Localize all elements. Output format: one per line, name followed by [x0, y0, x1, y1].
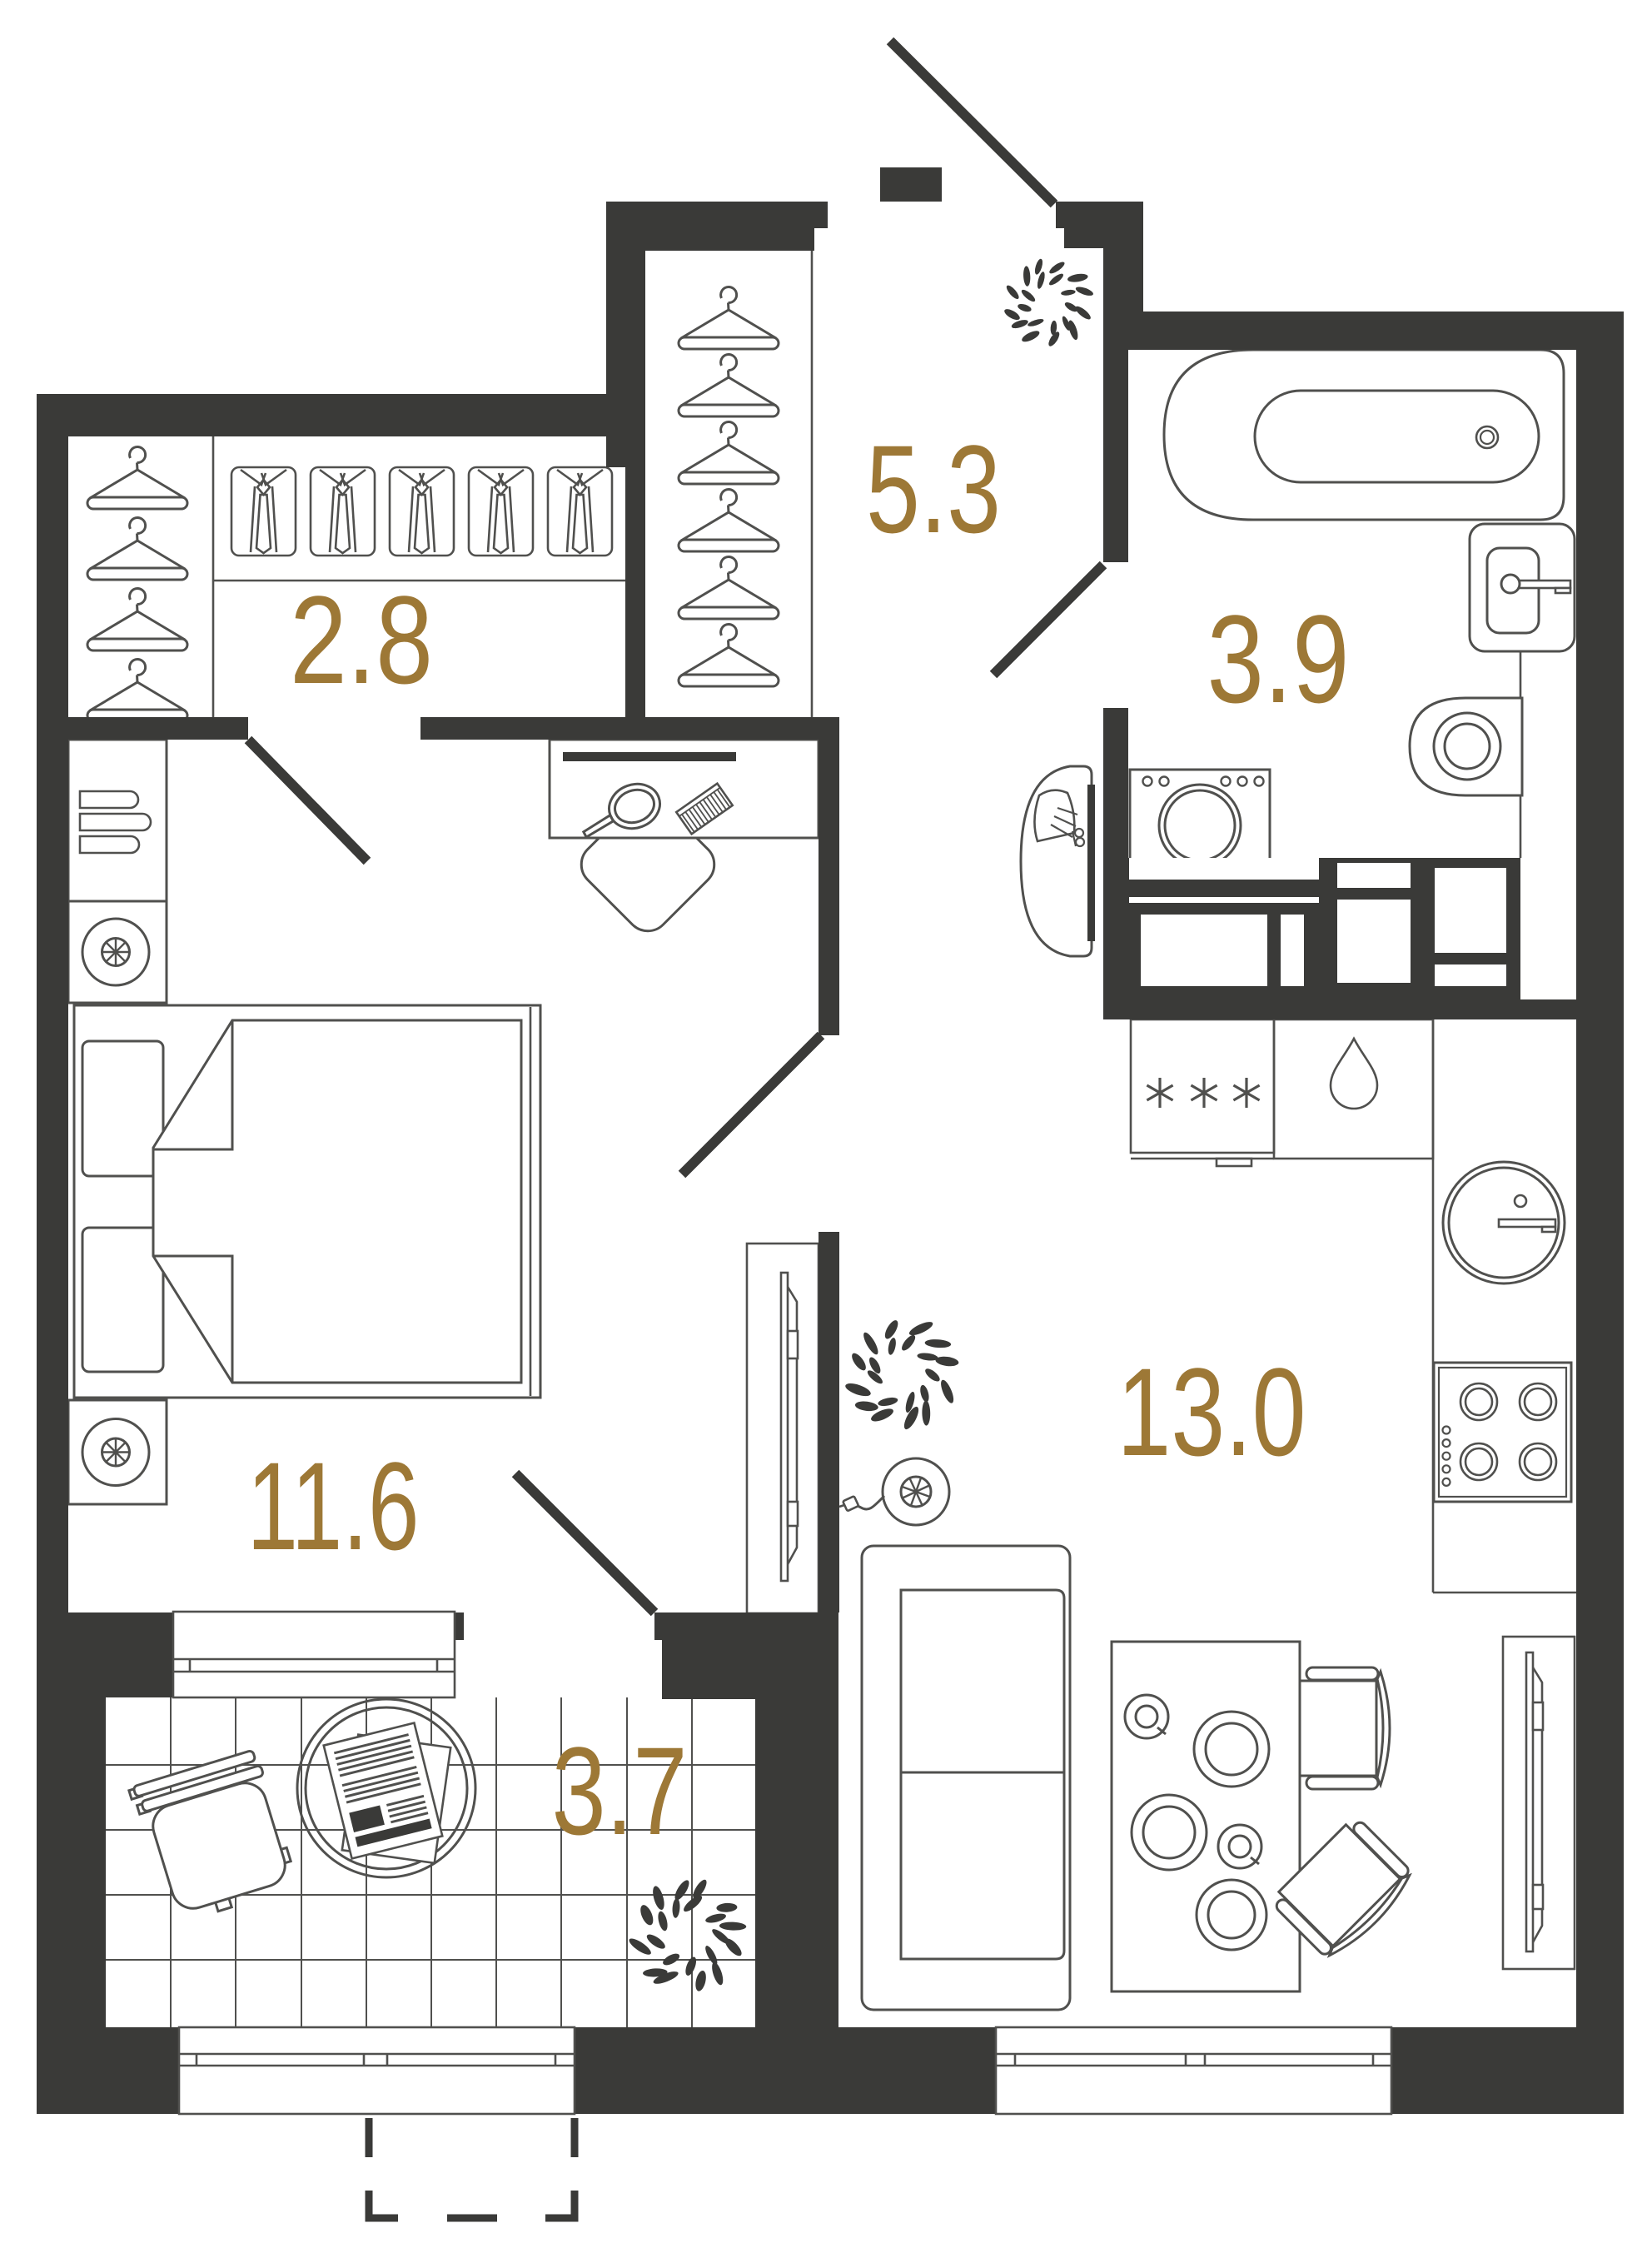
svg-text:13.0: 13.0: [1117, 1342, 1306, 1482]
svg-text:2.8: 2.8: [290, 570, 433, 710]
svg-text:5.3: 5.3: [866, 419, 1001, 559]
svg-text:3.9: 3.9: [1207, 589, 1350, 729]
svg-text:3.7: 3.7: [552, 1721, 688, 1861]
svg-text:11.6: 11.6: [247, 1436, 420, 1576]
